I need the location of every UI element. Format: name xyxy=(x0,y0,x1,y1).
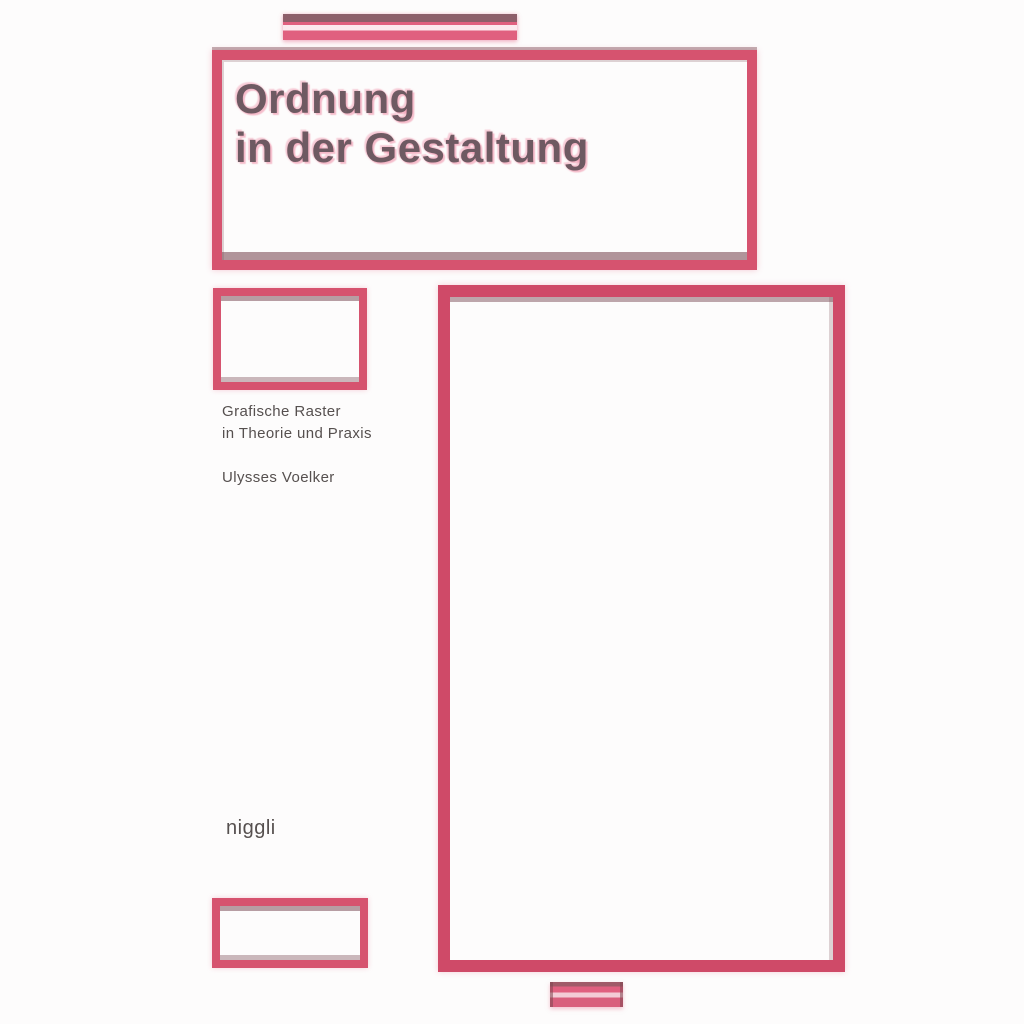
small-frame-middle-left xyxy=(213,288,367,390)
author-name: Ulysses Voelker xyxy=(222,467,335,489)
title-line-1: Ordnung xyxy=(235,74,747,123)
subtitle-line-2: in Theorie und Praxis xyxy=(222,423,372,445)
title-box: Ordnung in der Gestaltung xyxy=(212,50,757,270)
title-line-2: in der Gestaltung xyxy=(235,123,747,172)
publisher-logo: niggli xyxy=(226,817,276,840)
book-cover: Ordnung in der Gestaltung Grafische Rast… xyxy=(0,0,1024,1024)
subtitle-line-1: Grafische Raster xyxy=(222,401,372,423)
subtitle: Grafische Raster in Theorie und Praxis xyxy=(222,401,372,445)
book-title: Ordnung in der Gestaltung xyxy=(222,60,747,172)
bottom-spine-rect xyxy=(550,982,623,1007)
large-frame-right xyxy=(438,285,845,972)
top-spine-rect xyxy=(283,14,517,40)
small-frame-bottom-left xyxy=(212,898,368,968)
